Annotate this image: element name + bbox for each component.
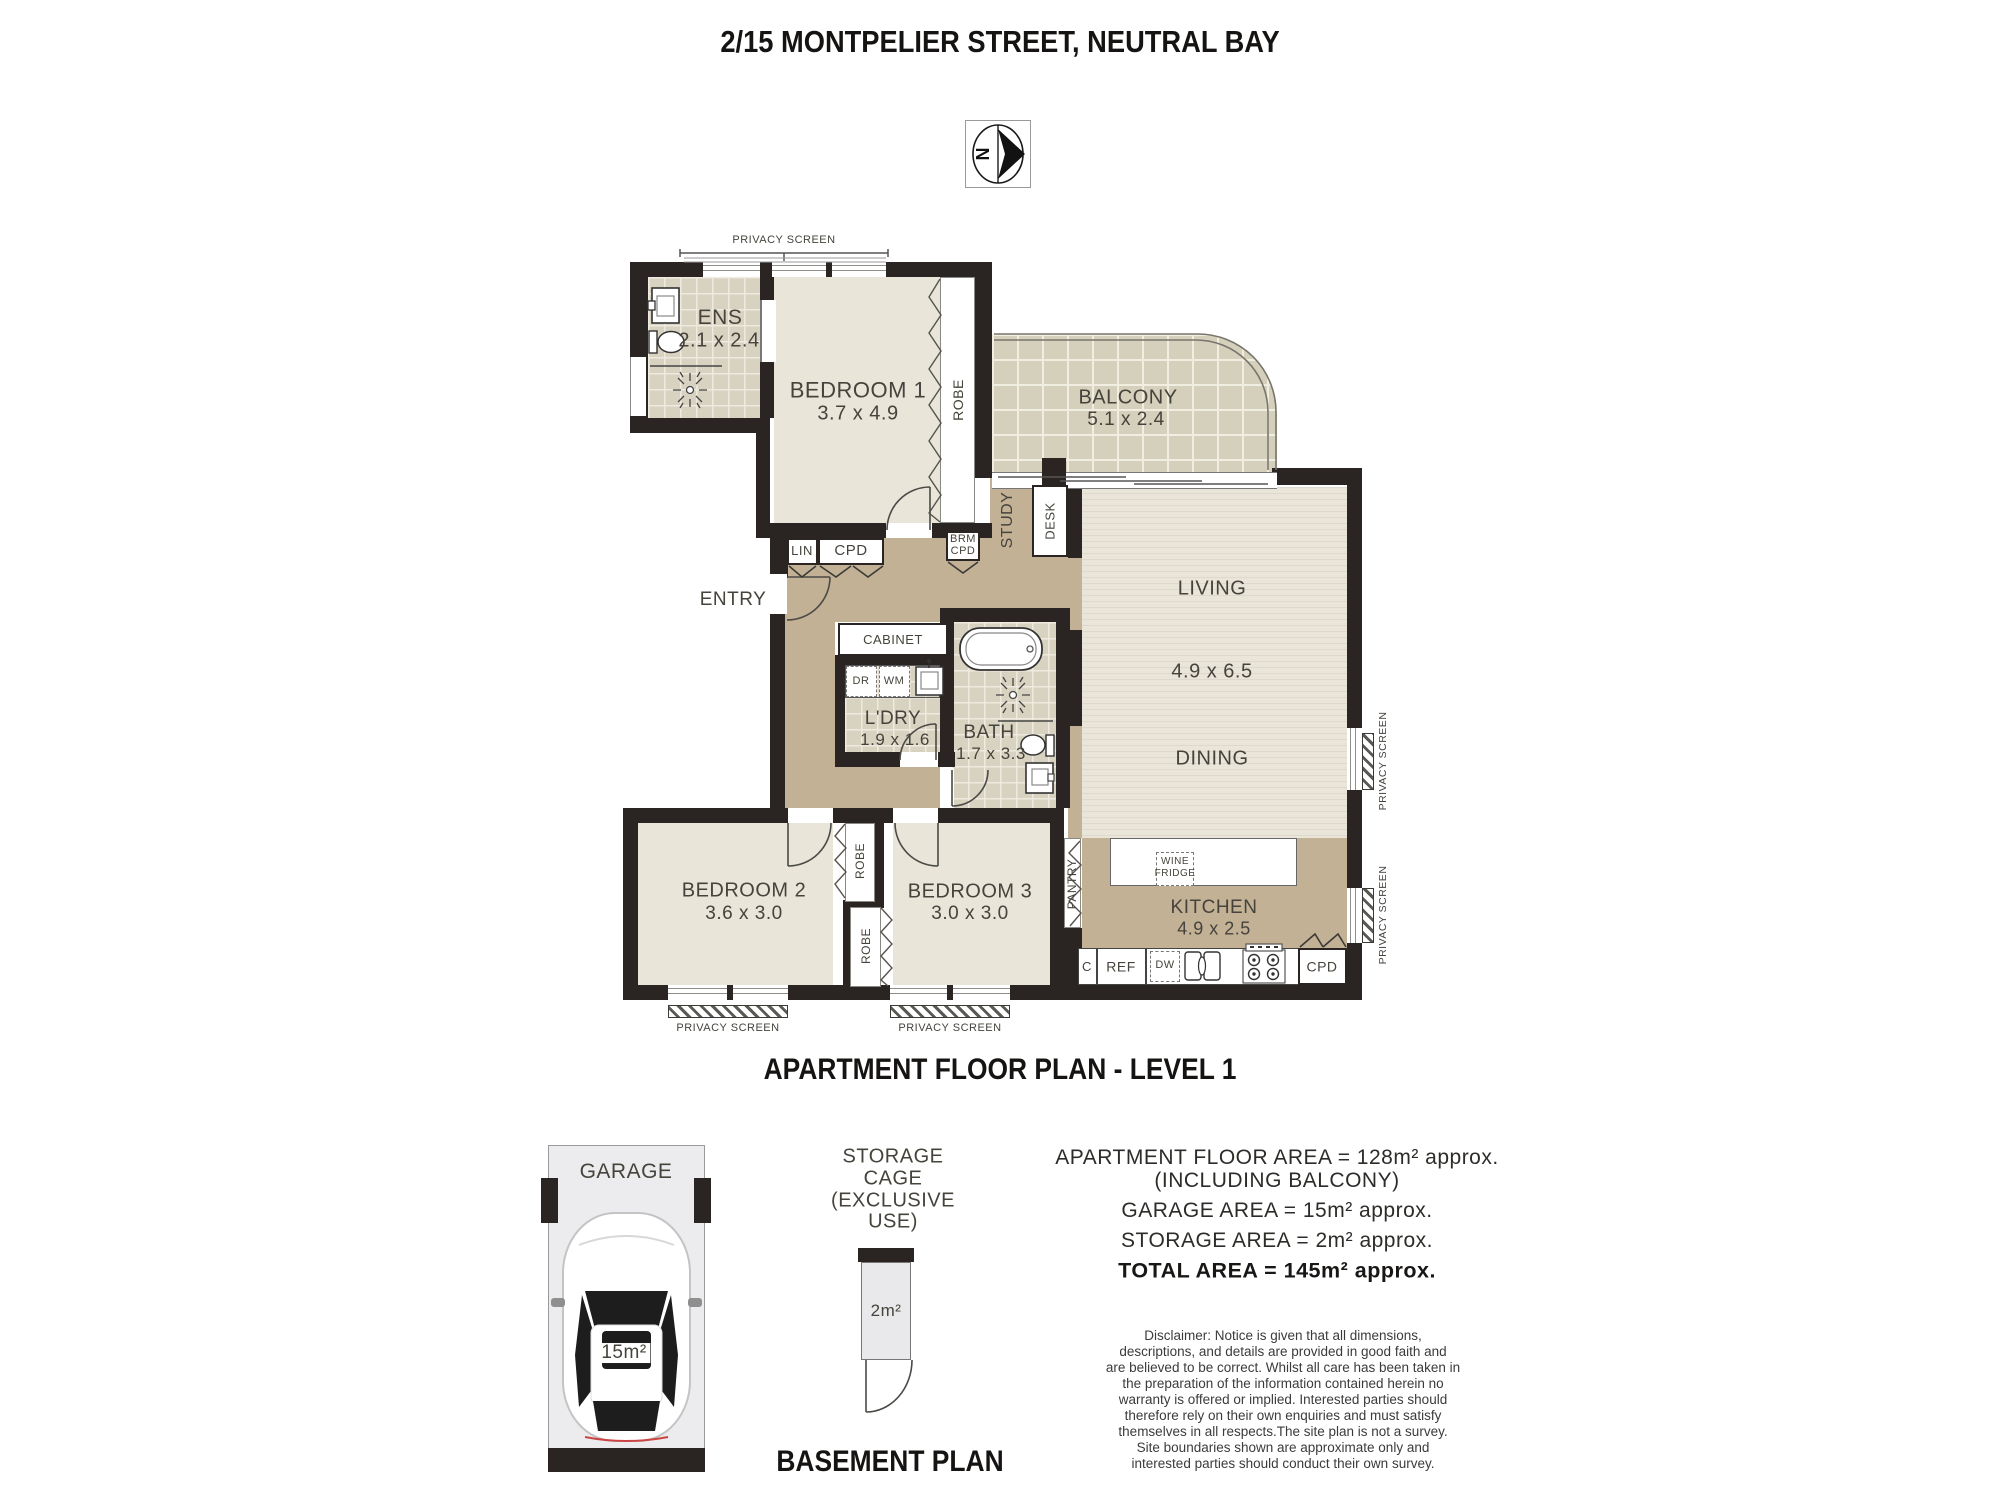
broom-cpd-label-1: BRM (950, 534, 976, 546)
bedroom2-dims: 3.6 x 3.0 (705, 904, 782, 924)
desk-label: DESK (1043, 502, 1058, 539)
basement-heading: BASEMENT PLAN (776, 1445, 1003, 1479)
privacy-label-kitchen: PRIVACY SCREEN (1377, 866, 1389, 965)
bedroom3-label: BEDROOM 3 (908, 882, 1033, 903)
storage-area-label: 2m² (871, 1302, 902, 1320)
laundry-label: L'DRY (865, 709, 921, 729)
c-cupboard-label: C (1082, 960, 1092, 974)
area-line-total: TOTAL AREA = 145m² approx. (1118, 1260, 1436, 1283)
privacy-bracket-top (680, 249, 888, 262)
ens-shower-icon (673, 372, 707, 408)
laundry-dims: 1.9 x 1.6 (860, 731, 930, 749)
disclaimer-line: warranty is offered or implied. Interest… (1119, 1392, 1447, 1408)
laundry-sink (916, 659, 943, 695)
washer-label: WM (884, 676, 905, 688)
privacy-label-dining: PRIVACY SCREEN (1377, 712, 1389, 811)
fridge-label: REF (1106, 960, 1136, 975)
living-label: LIVING (1178, 579, 1247, 600)
kitchen-dims: 4.9 x 2.5 (1177, 920, 1251, 939)
bed3-door-arc (895, 823, 938, 866)
wine-fridge-label-2: FRIDGE (1155, 869, 1196, 880)
entry-door-arc (787, 577, 830, 620)
entry-label: ENTRY (700, 590, 767, 610)
cupboard-label: CPD (834, 543, 867, 559)
disclaimer-line: interested parties should conduct their … (1132, 1456, 1435, 1472)
privacy-label-top: PRIVACY SCREEN (732, 235, 835, 247)
disclaimer-line: Site boundaries shown are approximate on… (1137, 1440, 1430, 1456)
bedroom1-dims: 3.7 x 4.9 (817, 404, 898, 425)
cabinet-label: CABINET (863, 633, 923, 647)
kitchen-sink (1185, 952, 1220, 980)
bed3-robe-zigzag (881, 908, 892, 986)
ens-dims: 2.1 x 2.4 (678, 331, 759, 352)
storage-heading-3: (EXCLUSIVE (831, 1191, 955, 1212)
balcony-dims: 5.1 x 2.4 (1087, 410, 1164, 430)
level1-heading: APARTMENT FLOOR PLAN - LEVEL 1 (764, 1053, 1237, 1087)
garage-rear-wall (548, 1448, 705, 1472)
dining-label: DINING (1176, 749, 1249, 770)
bed2-robe-zigzag (835, 824, 846, 898)
disclaimer-line: descriptions, and details are provided i… (1119, 1344, 1446, 1360)
area-line-balcony-note: (INCLUDING BALCONY) (1154, 1170, 1399, 1192)
bath-toilet-tank (1046, 735, 1054, 756)
linen-label: LIN (791, 544, 813, 558)
area-line-apartment: APARTMENT FLOOR AREA = 128m² approx. (1055, 1147, 1498, 1169)
bath-fixtures (960, 628, 1054, 793)
bed3-robe-label: ROBE (859, 928, 873, 964)
bath-shower-icon (996, 677, 1030, 713)
floor-plan-page: 2/15 MONTPELIER STREET, NEUTRAL BAY N (0, 0, 2000, 1500)
bed1-door-arc (887, 487, 930, 530)
dishwasher-label: DW (1155, 960, 1174, 972)
bedroom2-label: BEDROOM 2 (682, 881, 807, 902)
bath-door-arc (952, 770, 988, 806)
car-icon (549, 1205, 704, 1445)
bed1-robe-label: ROBE (950, 379, 966, 421)
area-line-garage: GARAGE AREA = 15m² approx. (1121, 1200, 1432, 1222)
storage-top-wall (858, 1248, 914, 1262)
bed2-door-arc (788, 823, 831, 866)
sliding-door-lines (998, 477, 1268, 484)
garage-area-label: 15m² (597, 1343, 650, 1363)
ens-toilet-tank (649, 331, 657, 353)
area-line-storage: STORAGE AREA = 2m² approx. (1121, 1230, 1433, 1252)
broom-cpd-label-2: CPD (951, 546, 976, 558)
kitchen-stove (1243, 944, 1285, 983)
bed2-robe-label: ROBE (853, 843, 867, 879)
privacy-label-bed2: PRIVACY SCREEN (676, 1023, 779, 1035)
bedroom3-dims: 3.0 x 3.0 (931, 904, 1008, 924)
dryer-label: DR (853, 676, 870, 688)
ens-sink (652, 288, 679, 323)
bathtub (960, 628, 1042, 670)
kitchen-label: KITCHEN (1171, 898, 1258, 918)
kitchen-cpd-label: CPD (1306, 960, 1337, 975)
disclaimer-line: the preparation of the information conta… (1122, 1376, 1443, 1392)
bedroom1-label: BEDROOM 1 (790, 378, 927, 401)
privacy-label-bed3: PRIVACY SCREEN (898, 1023, 1001, 1035)
garage-label: GARAGE (580, 1161, 673, 1183)
disclaimer-line: themselves in all respects.The site plan… (1118, 1424, 1447, 1440)
ens-label: ENS (698, 307, 743, 329)
disclaimer-line: therefore rely on their own enquiries an… (1125, 1408, 1442, 1424)
wine-fridge-label-1: WINE (1161, 857, 1189, 868)
storage-heading-2: CAGE (864, 1169, 923, 1190)
pantry-label: PANTRY (1065, 859, 1079, 910)
living-dims: 4.9 x 6.5 (1171, 662, 1252, 683)
bath-label: BATH (963, 723, 1014, 743)
bed1-robe-zigzag (929, 279, 941, 522)
storage-door-arc (866, 1360, 912, 1412)
study-label: STUDY (999, 492, 1017, 549)
disclaimer-line: Disclaimer: Notice is given that all dim… (1144, 1328, 1422, 1344)
disclaimer-line: are believed to be correct. Whilst all c… (1106, 1360, 1460, 1376)
storage-heading-1: STORAGE (843, 1147, 944, 1168)
storage-heading-4: USE) (868, 1212, 918, 1233)
balcony-label: BALCONY (1078, 388, 1177, 409)
bath-dims: 1.7 x 3.3 (956, 745, 1026, 763)
